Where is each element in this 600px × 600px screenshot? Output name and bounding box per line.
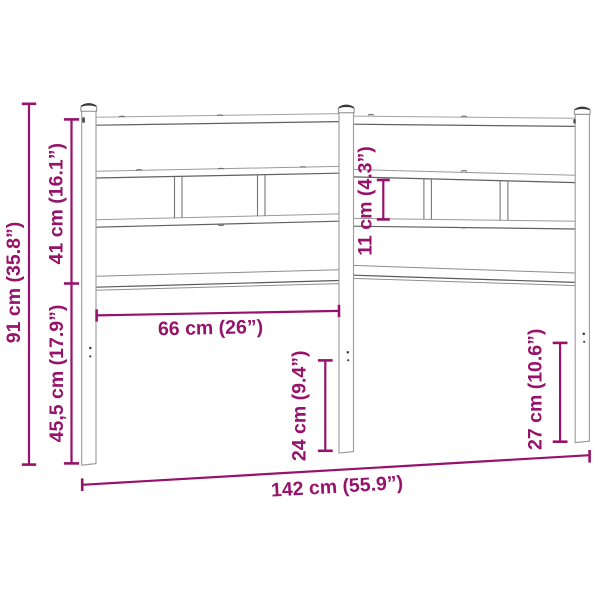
svg-text:24 cm (9.4”): 24 cm (9.4”)	[289, 351, 311, 462]
svg-text:11 cm (4.3”): 11 cm (4.3”)	[354, 146, 376, 255]
svg-text:45,5 cm (17.9”): 45,5 cm (17.9”)	[46, 305, 68, 443]
svg-text:27 cm (10.6”): 27 cm (10.6”)	[525, 329, 547, 450]
svg-text:66 cm (26”): 66 cm (26”)	[158, 316, 264, 340]
svg-text:41 cm (16.1”): 41 cm (16.1”)	[46, 143, 68, 264]
svg-text:91 cm (35.8”): 91 cm (35.8”)	[3, 222, 25, 343]
